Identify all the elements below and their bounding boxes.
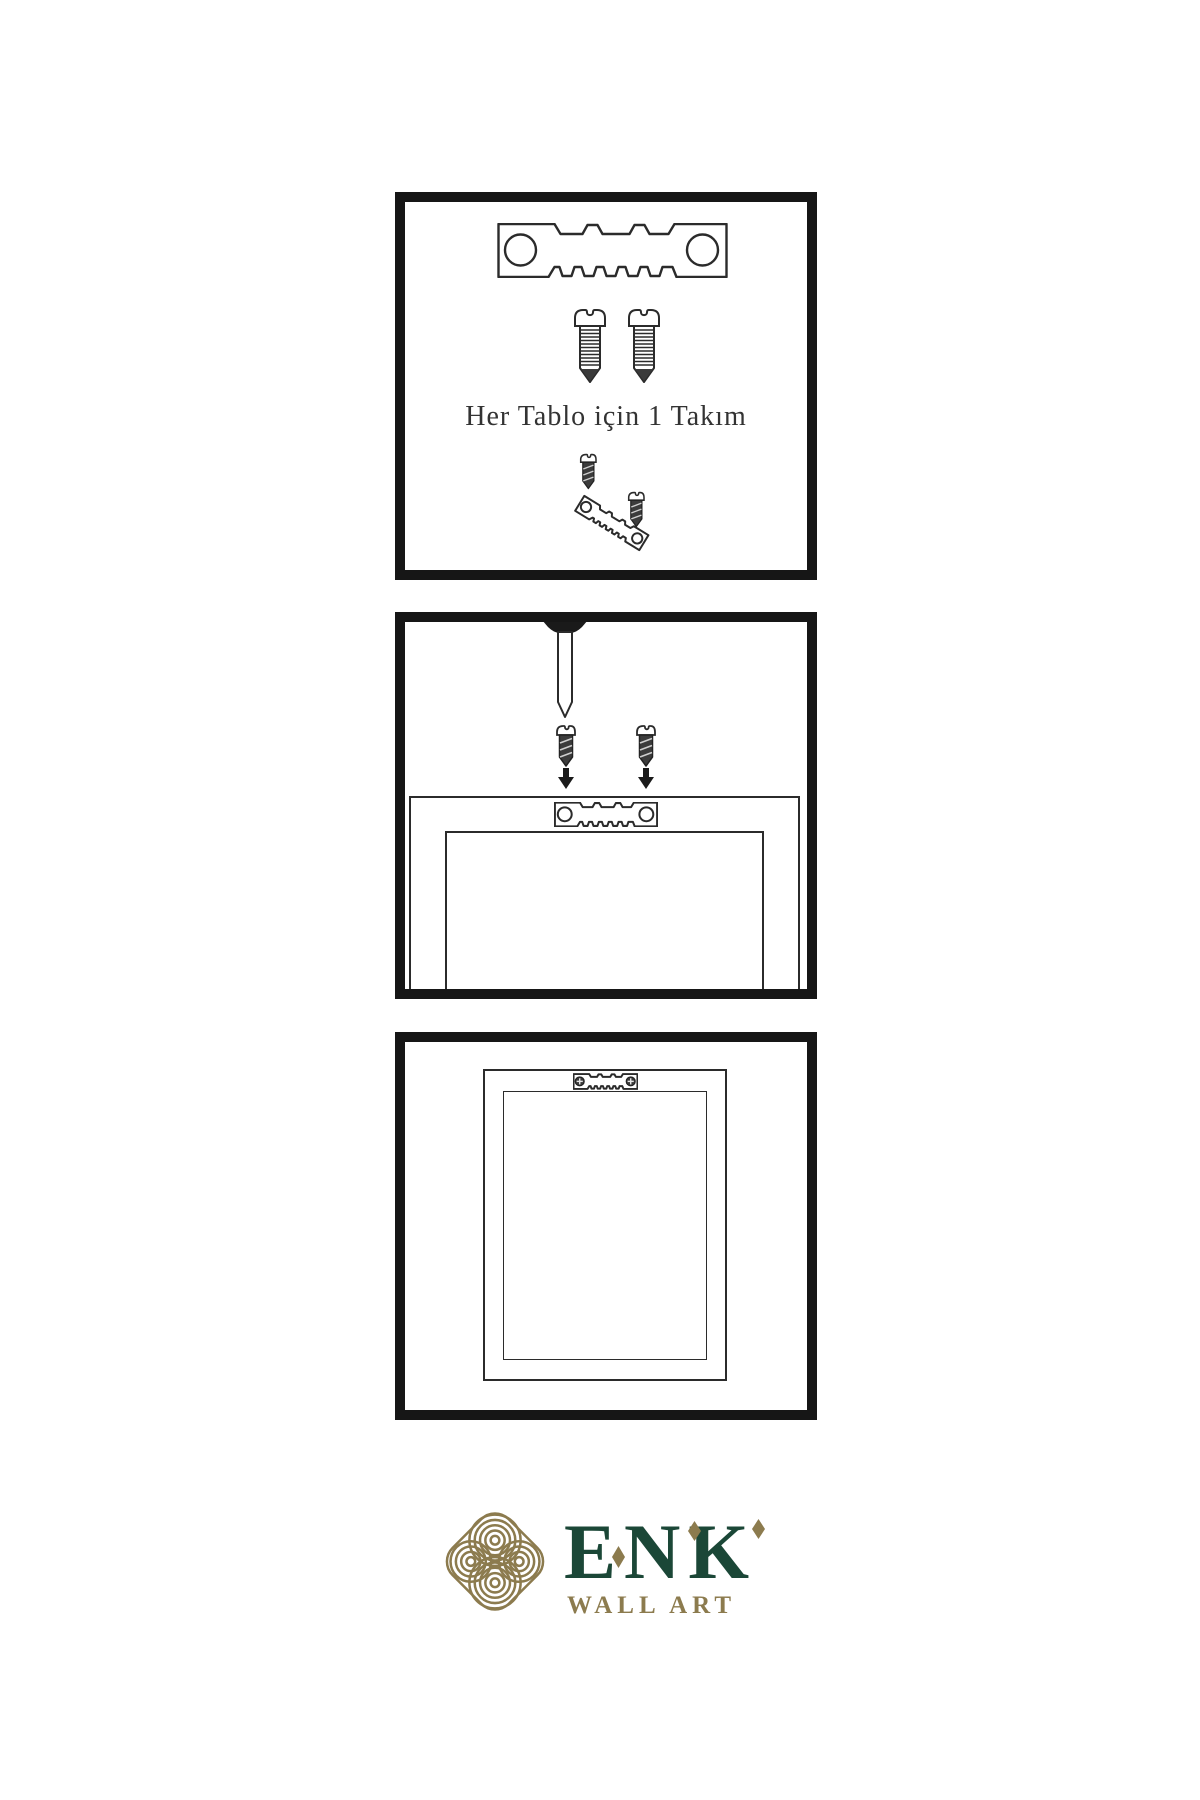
step3-panel — [395, 1032, 817, 1420]
frame-back-inner-outline — [503, 1091, 707, 1360]
dark-screw-icon — [555, 723, 577, 769]
step1-panel: Her Tablo için 1 Takım — [395, 192, 817, 580]
nail-icon — [542, 620, 588, 720]
installed-sawtooth-hanger-icon — [573, 1073, 638, 1090]
brand-subtitle: WALL ART — [567, 1592, 736, 1620]
step1-caption: Her Tablo için 1 Takım — [405, 402, 807, 432]
sawtooth-hanger-icon — [554, 802, 658, 827]
arrow-down-icon — [638, 768, 654, 789]
sawtooth-hanger-icon — [495, 223, 730, 278]
screw-icon — [626, 306, 662, 384]
screw-head-icon — [626, 1077, 635, 1086]
brand-name: ENK — [564, 1512, 757, 1592]
arrow-down-icon — [558, 768, 574, 789]
screw-head-icon — [575, 1077, 584, 1086]
instruction-sheet: Her Tablo için 1 Takım — [0, 0, 1200, 1800]
mini-diagram-screws-into-hanger — [563, 450, 661, 552]
screw-icon — [572, 306, 608, 384]
dark-screw-icon — [635, 723, 657, 769]
frame-back-inner-outline — [445, 831, 764, 999]
step2-panel — [395, 612, 817, 999]
brand-knot-icon — [437, 1498, 553, 1625]
